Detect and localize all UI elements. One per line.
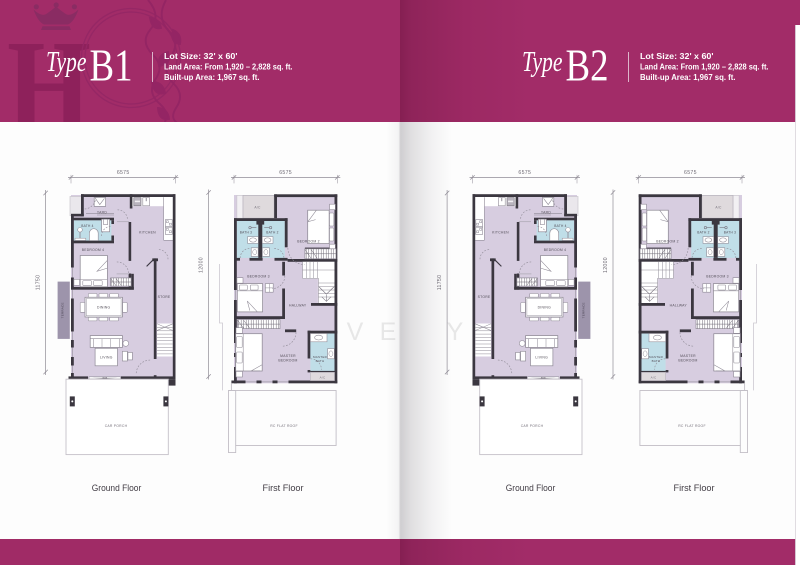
svg-text:BEDROOM 2: BEDROOM 2	[297, 240, 320, 244]
svg-text:12000: 12000	[198, 257, 204, 273]
svg-text:BATH: BATH	[316, 359, 325, 363]
svg-text:Built-up Area: 1,967 sq. ft.: Built-up Area: 1,967 sq. ft.	[640, 72, 736, 82]
svg-text:BATH 3: BATH 3	[240, 231, 252, 235]
svg-text:BEDROOM 3: BEDROOM 3	[247, 275, 270, 279]
svg-text:BATH: BATH	[652, 359, 661, 363]
svg-text:Type: Type	[46, 47, 87, 78]
svg-text:BEDROOM 2: BEDROOM 2	[656, 240, 679, 244]
svg-text:Land Area: From 1,920 – 2,828: Land Area: From 1,920 – 2,828 sq. ft.	[640, 62, 769, 72]
svg-text:CAR PORCH: CAR PORCH	[105, 424, 128, 428]
svg-text:11750: 11750	[35, 275, 41, 291]
svg-text:BEDROOM 4: BEDROOM 4	[82, 248, 105, 252]
svg-text:Lot Size: 32' x 60': Lot Size: 32' x 60'	[164, 51, 238, 61]
svg-text:First Floor: First Floor	[263, 483, 304, 493]
svg-text:B2: B2	[566, 41, 609, 91]
svg-text:12000: 12000	[603, 257, 609, 273]
svg-text:BATH 4: BATH 4	[81, 224, 93, 228]
svg-text:Ground Floor: Ground Floor	[92, 483, 142, 493]
svg-text:TERRACE: TERRACE	[61, 302, 65, 318]
svg-text:LIVING: LIVING	[535, 355, 548, 359]
svg-text:BEDROOM 4: BEDROOM 4	[544, 248, 567, 252]
svg-text:6575: 6575	[279, 170, 292, 176]
svg-text:V: V	[347, 318, 364, 346]
svg-text:Type: Type	[522, 47, 563, 78]
svg-text:BATH 3: BATH 3	[724, 231, 736, 235]
svg-text:Built-up Area: 1,967 sq. ft.: Built-up Area: 1,967 sq. ft.	[164, 72, 260, 82]
svg-text:A/C: A/C	[715, 206, 722, 210]
svg-text:6575: 6575	[684, 170, 697, 176]
svg-text:MASTER: MASTER	[680, 354, 696, 358]
svg-text:STORE: STORE	[478, 295, 491, 299]
svg-text:BATH 2: BATH 2	[266, 231, 278, 235]
svg-text:KITCHEN: KITCHEN	[139, 230, 156, 234]
svg-text:HALLWAY: HALLWAY	[670, 304, 688, 308]
svg-text:STORE: STORE	[158, 295, 171, 299]
svg-text:A/C: A/C	[320, 375, 326, 379]
svg-text:BATH 2: BATH 2	[697, 231, 709, 235]
svg-text:LIVING: LIVING	[100, 355, 113, 359]
svg-text:TERRACE: TERRACE	[581, 302, 585, 318]
svg-text:RC FLAT ROOF: RC FLAT ROOF	[270, 424, 298, 428]
svg-text:First Floor: First Floor	[674, 483, 715, 493]
svg-text:BEDROOM: BEDROOM	[278, 359, 297, 363]
svg-text:MASTER: MASTER	[280, 354, 296, 358]
svg-text:Lot Size: 32' x 60': Lot Size: 32' x 60'	[640, 51, 714, 61]
svg-text:A/C: A/C	[651, 375, 657, 379]
svg-text:CAR PORCH: CAR PORCH	[521, 424, 544, 428]
svg-text:BATH 4: BATH 4	[554, 224, 566, 228]
svg-text:6575: 6575	[518, 170, 531, 176]
svg-text:Land Area: From 1,920 – 2,828: Land Area: From 1,920 – 2,828 sq. ft.	[164, 62, 293, 72]
svg-text:HALLWAY: HALLWAY	[289, 304, 307, 308]
svg-text:Ground Floor: Ground Floor	[506, 483, 556, 493]
svg-text:DINING: DINING	[538, 305, 551, 309]
svg-text:YARD: YARD	[97, 210, 107, 214]
svg-text:6575: 6575	[117, 170, 130, 176]
svg-text:BEDROOM: BEDROOM	[678, 359, 697, 363]
svg-text:YARD: YARD	[541, 210, 551, 214]
svg-text:A/C: A/C	[254, 206, 261, 210]
svg-text:RC FLAT ROOF: RC FLAT ROOF	[678, 424, 706, 428]
svg-text:KITCHEN: KITCHEN	[492, 230, 509, 234]
svg-text:B1: B1	[90, 41, 133, 91]
svg-text:BEDROOM 3: BEDROOM 3	[706, 275, 729, 279]
svg-text:DINING: DINING	[97, 305, 110, 309]
